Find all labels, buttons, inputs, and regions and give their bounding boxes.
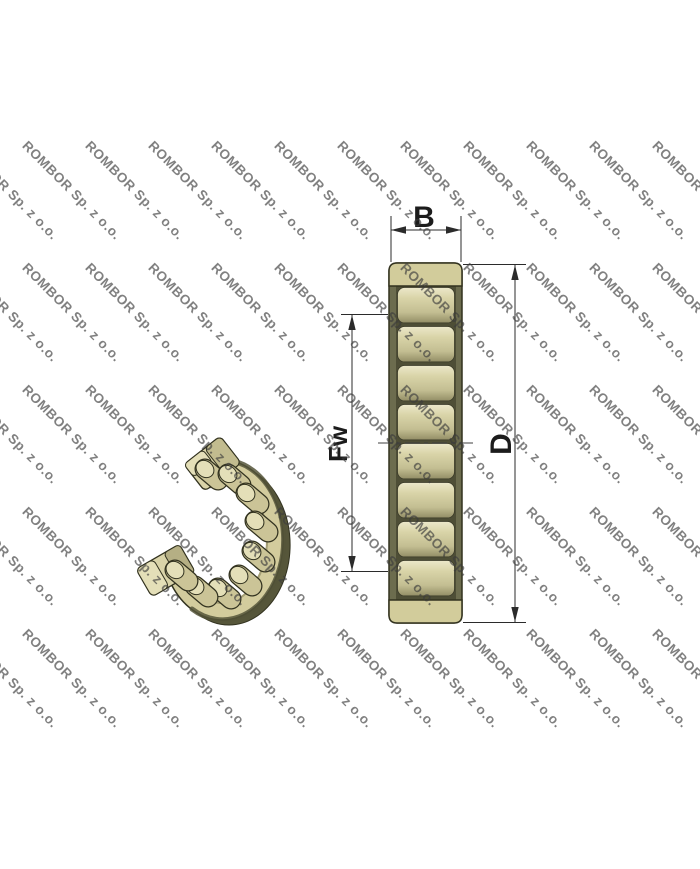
iso-roller [240, 539, 265, 563]
bearing-technical-drawing: B Fw D [0, 0, 700, 869]
roller [398, 444, 455, 479]
dimension-arrowhead [511, 265, 518, 280]
section-bottom-cap [389, 600, 462, 623]
dimension-label-d: D [485, 433, 518, 455]
dimension-label-b: B [413, 201, 435, 234]
dimension-arrowhead [391, 226, 406, 233]
drawing-canvas: B Fw D ROMBOR Sp. z o.o.ROMBOR Sp. z o.o… [0, 0, 700, 869]
iso-roller [227, 563, 252, 587]
roller [398, 561, 455, 596]
dimension-arrowhead [348, 556, 355, 571]
roller [398, 405, 455, 440]
dimension-b: B [391, 201, 461, 262]
dimension-arrowhead [348, 315, 355, 330]
dimension-arrowhead [511, 607, 518, 622]
roller [398, 327, 455, 362]
isometric-view [108, 432, 290, 625]
roller [398, 522, 455, 557]
section-top-cap [389, 263, 462, 286]
dimension-arrowhead [446, 226, 461, 233]
roller [398, 288, 455, 323]
roller [398, 366, 455, 401]
roller [398, 483, 455, 518]
dimension-label-fw: Fw [323, 425, 353, 462]
section-view [378, 263, 473, 623]
